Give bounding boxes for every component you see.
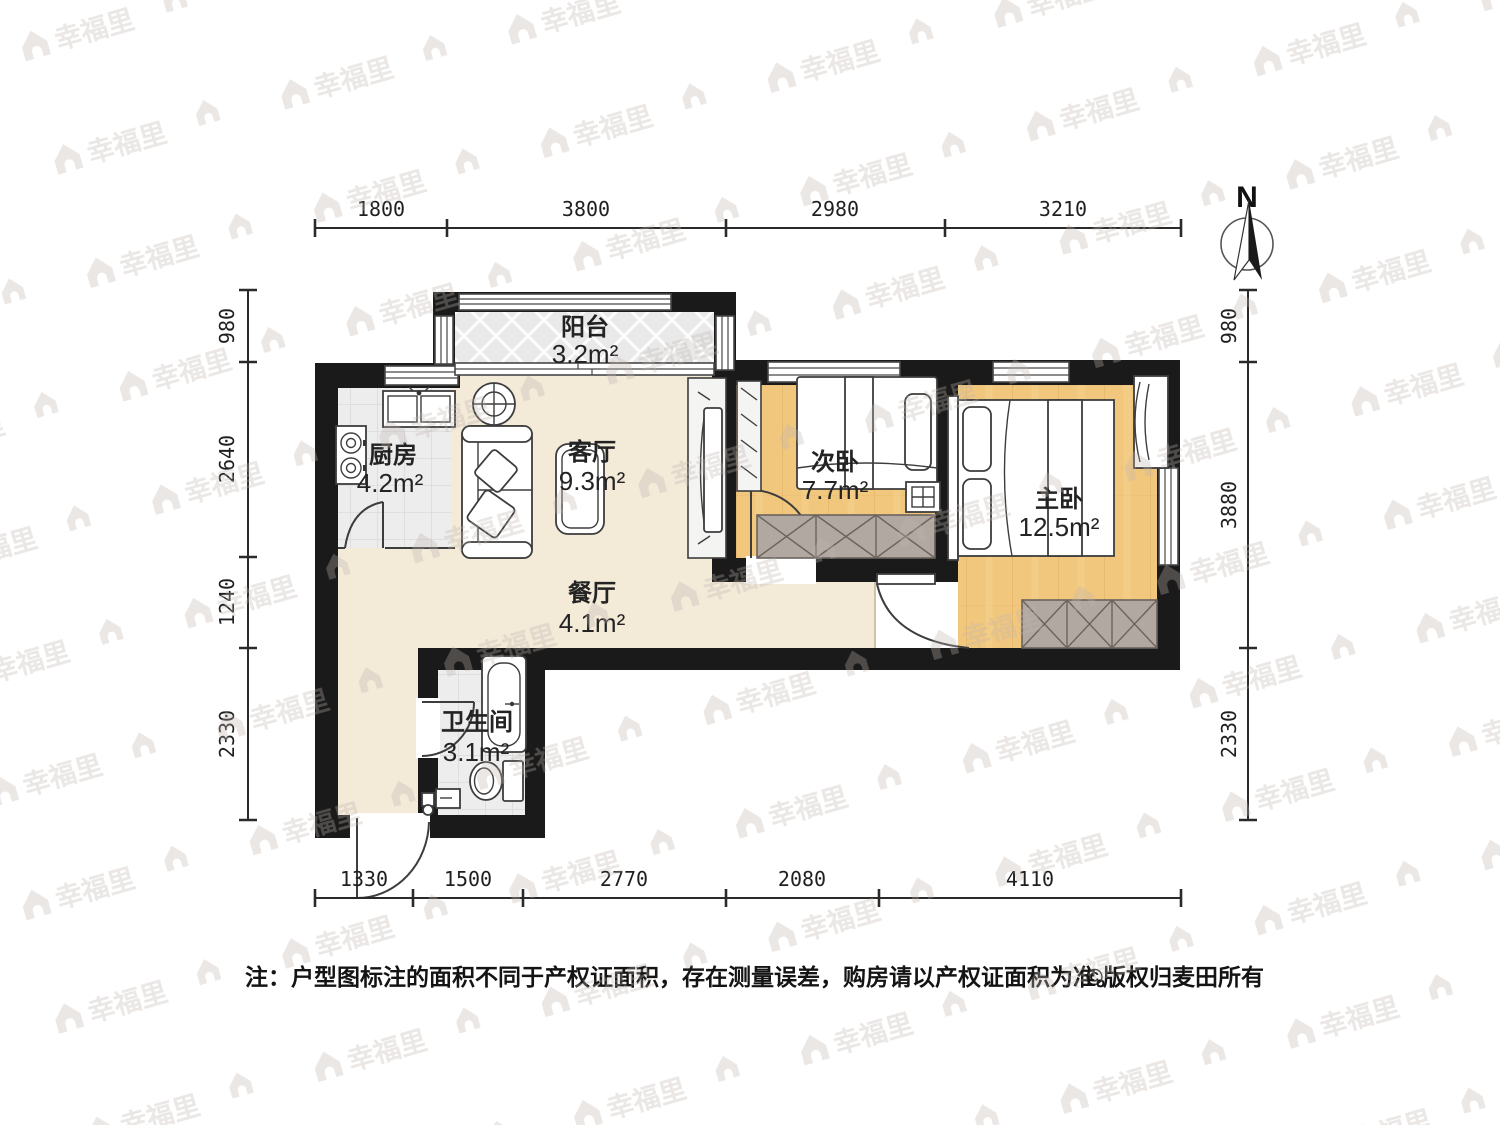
dining-label: 餐厅 xyxy=(568,580,616,607)
dim-top-2: 3800 xyxy=(562,197,610,221)
floor-plan-canvas: 幸福里 xyxy=(0,0,1500,1125)
bedroom2-wardrobe xyxy=(757,515,935,558)
bedroom2-shelf xyxy=(737,381,761,491)
balcony-top-window xyxy=(459,294,671,310)
kitchen-window xyxy=(385,366,458,385)
dim-bottom-3: 2770 xyxy=(600,867,648,891)
dim-right-3: 2330 xyxy=(1217,710,1241,758)
master-bedroom-label: 主卧 xyxy=(1035,486,1083,513)
bedroom2-label: 次卧 xyxy=(811,449,859,476)
master-wardrobe xyxy=(1022,600,1157,648)
master-bedroom-area: 12.5m² xyxy=(1019,512,1100,542)
balcony-right-window xyxy=(716,316,734,370)
entry-floor xyxy=(338,648,420,815)
master-dresser xyxy=(1134,376,1168,468)
kitchen-area: 4.2m² xyxy=(357,468,424,498)
dim-top-1: 1800 xyxy=(357,197,405,221)
dim-left-3: 1240 xyxy=(215,578,239,626)
footer-note: 注：户型图标注的面积不同于产权证面积，存在测量误差，购房请以产权证面积为准。 ©… xyxy=(245,964,1264,990)
copyright-text: ©版权归麦田所有 xyxy=(1086,964,1264,990)
west-wall xyxy=(315,363,338,838)
south-wall xyxy=(418,648,1180,670)
kitchen-label: 厨房 xyxy=(369,441,417,469)
toilet xyxy=(470,761,523,801)
living-room-area: 9.3m² xyxy=(559,466,626,496)
bathroom-label: 卫生间 xyxy=(441,709,513,736)
dim-right-2: 3880 xyxy=(1217,481,1241,529)
dim-right-1: 980 xyxy=(1217,308,1241,344)
dim-top-3: 2980 xyxy=(811,197,859,221)
dining-floor xyxy=(338,548,712,648)
balcony-left-window xyxy=(435,316,453,364)
disclaimer-text: 注：户型图标注的面积不同于产权证面积，存在测量误差，购房请以产权证面积为准。 xyxy=(245,964,1119,990)
dim-left-1: 980 xyxy=(215,308,239,344)
dim-left-4: 2330 xyxy=(215,710,239,758)
dining-area: 4.1m² xyxy=(559,608,626,638)
ceiling-fan-icon xyxy=(473,383,515,425)
sofa xyxy=(462,426,532,558)
dim-left-2: 2640 xyxy=(215,435,239,483)
kitchen-sink xyxy=(383,387,455,427)
dim-bottom-1: 1330 xyxy=(340,867,388,891)
tv-cabinet xyxy=(688,378,726,558)
master-top-window xyxy=(993,362,1069,382)
living-room-label: 客厅 xyxy=(568,438,616,466)
dim-bottom-4: 2080 xyxy=(778,867,826,891)
bedroom2-area: 7.7m² xyxy=(802,475,869,505)
balcony-label: 阳台 xyxy=(561,313,609,341)
dim-bottom-2: 1500 xyxy=(444,867,492,891)
bathroom-area: 3.1m² xyxy=(443,737,510,767)
bathroom-right-wall xyxy=(525,648,545,838)
dim-top-4: 3210 xyxy=(1039,197,1087,221)
balcony-area: 3.2m² xyxy=(552,339,619,369)
hallway-floor xyxy=(712,582,875,648)
dim-bottom-5: 4110 xyxy=(1006,867,1054,891)
master-right-window xyxy=(1159,468,1178,565)
bedroom2-nightstand xyxy=(906,482,940,512)
